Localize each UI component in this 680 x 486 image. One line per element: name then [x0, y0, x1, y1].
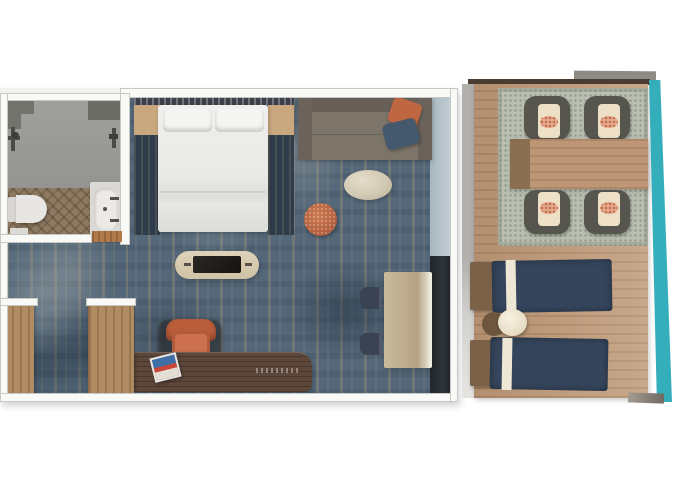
sun-lounger-2-strap [502, 338, 513, 390]
round-side-table [498, 309, 527, 336]
wall-stub-left [0, 298, 38, 306]
sink-drain [103, 207, 107, 211]
balcony-edge-teal [644, 80, 672, 402]
stateroom-floor-plan [0, 0, 680, 486]
sun-lounger-1-strap [506, 260, 517, 312]
glass-door [430, 256, 452, 394]
shower-head-icon [12, 132, 19, 139]
outdoor-chair-1-pillow [540, 116, 558, 128]
balcony-bottom-trim [628, 392, 664, 403]
toilet [16, 195, 47, 223]
outdoor-dining-table [510, 139, 648, 189]
bed-pillow-right [215, 109, 264, 132]
tv-handle-left [184, 263, 191, 266]
wall-bath-bottom [0, 234, 92, 243]
wardrobe-right [88, 304, 134, 394]
wall-top-bathroom [0, 93, 126, 101]
wall-stub-right [86, 298, 136, 306]
shower-corner-tr [88, 98, 122, 120]
shower-corner-tl2 [6, 98, 21, 129]
bed-pillow-left [163, 109, 212, 132]
bath-door-threshold [92, 231, 122, 242]
dining-chair-1 [360, 287, 382, 309]
faucet-handle-bottom [110, 219, 119, 222]
bed-crease [160, 191, 266, 193]
outdoor-chair-2-pillow [600, 116, 618, 128]
window-strip [430, 96, 452, 256]
tv-handle-right [245, 263, 252, 266]
outdoor-chair-3-pillow [540, 202, 558, 214]
bedside-runner-right [268, 135, 294, 235]
wardrobe-left [4, 304, 34, 394]
nightstand-right [268, 105, 294, 135]
wall-bottom [0, 393, 458, 402]
window-dining-table [384, 272, 432, 368]
wall-top-bedroom [120, 88, 458, 98]
sofa-arm-left [298, 96, 312, 160]
outdoor-table-end [510, 139, 530, 189]
tv-screen [193, 256, 241, 273]
wall-left [0, 93, 8, 402]
faucet-handle-top [110, 197, 119, 200]
wall-bath-divider [120, 93, 130, 245]
desk-vent-detail [256, 368, 298, 373]
shower-fixture-right-knob [109, 134, 118, 139]
nightstand-left [134, 105, 160, 135]
dining-chair-2 [360, 333, 382, 355]
oval-coffee-table [344, 170, 392, 200]
outdoor-chair-4-pillow [600, 202, 618, 214]
bedside-runner-left [134, 135, 160, 235]
orange-ottoman [304, 203, 337, 236]
wall-right [450, 88, 458, 402]
